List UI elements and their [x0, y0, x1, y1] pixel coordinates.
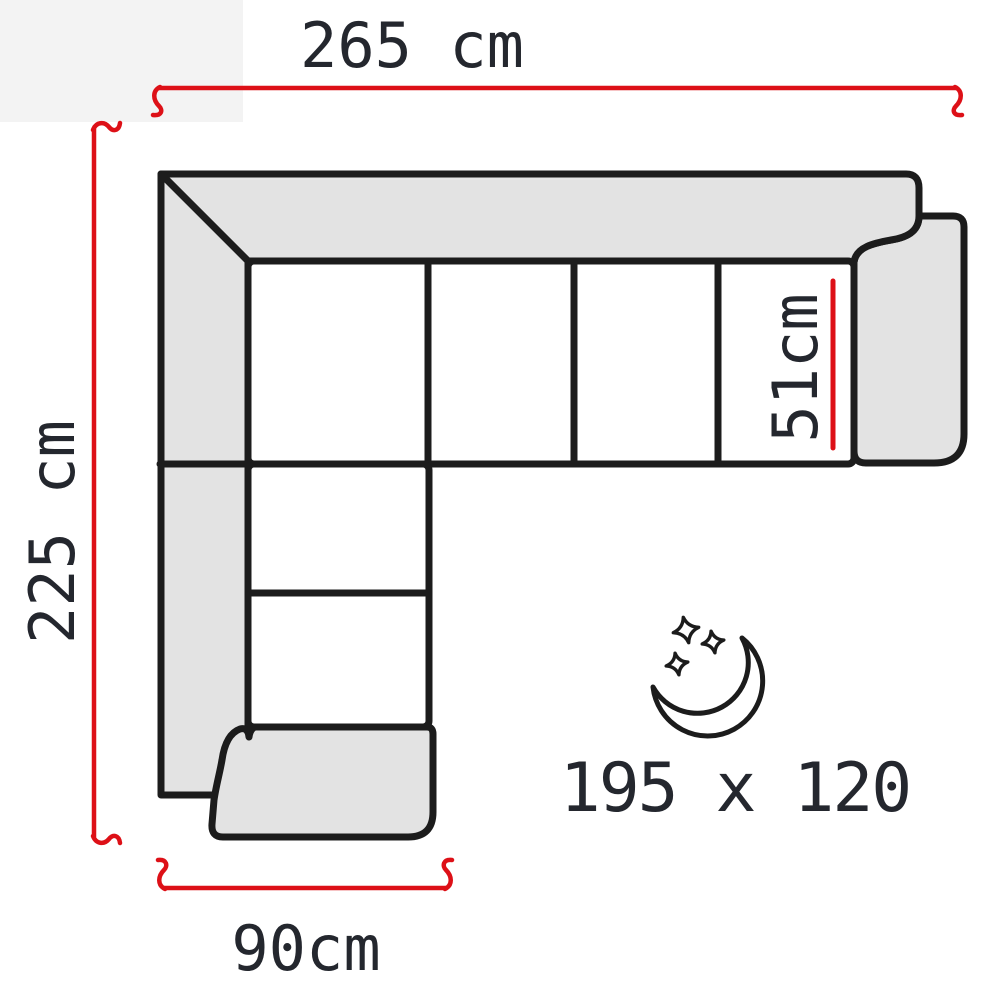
dimension-width: 265 cm [153, 9, 962, 115]
dimension-label-width: 265 cm [300, 9, 524, 82]
moon-icon [653, 638, 763, 736]
dimension-label-seat: 51cm [759, 293, 832, 442]
dimension-hook-chaise-left [158, 860, 166, 889]
sofa-right-armrest [854, 216, 964, 463]
background-corner-patch [0, 0, 243, 122]
sofa-backrest [161, 174, 919, 262]
sparkle-icon [700, 629, 725, 654]
dimension-hook-width-right [954, 87, 962, 115]
dimension-hook-depth-top [93, 123, 120, 130]
sofa-outline [160, 174, 964, 837]
dimension-label-depth: 225 cm [16, 420, 89, 644]
dimension-hook-depth-bottom [93, 836, 120, 843]
sofa-front-armrest [212, 727, 433, 837]
sparkle-icon [664, 651, 689, 676]
dimension-seat: 51cm [759, 281, 833, 448]
dimension-depth: 225 cm [16, 123, 120, 843]
moon-with-stars-icon [653, 615, 763, 736]
dimension-chaise: 90cm [158, 860, 452, 985]
sofa-floorplan-canvas: 265 cm 225 cm 51cm 90cm [0, 0, 1000, 1000]
sparkle-icon [671, 615, 702, 646]
sofa-dimension-diagram: 265 cm 225 cm 51cm 90cm [0, 0, 1000, 1000]
dimension-label-chaise: 90cm [231, 912, 380, 985]
sofa-left-armrest [161, 174, 248, 795]
sleep-function: 195 x 120 [560, 615, 910, 828]
sleeping-area-label: 195 x 120 [560, 749, 910, 828]
dimension-hook-chaise-right [444, 860, 452, 889]
